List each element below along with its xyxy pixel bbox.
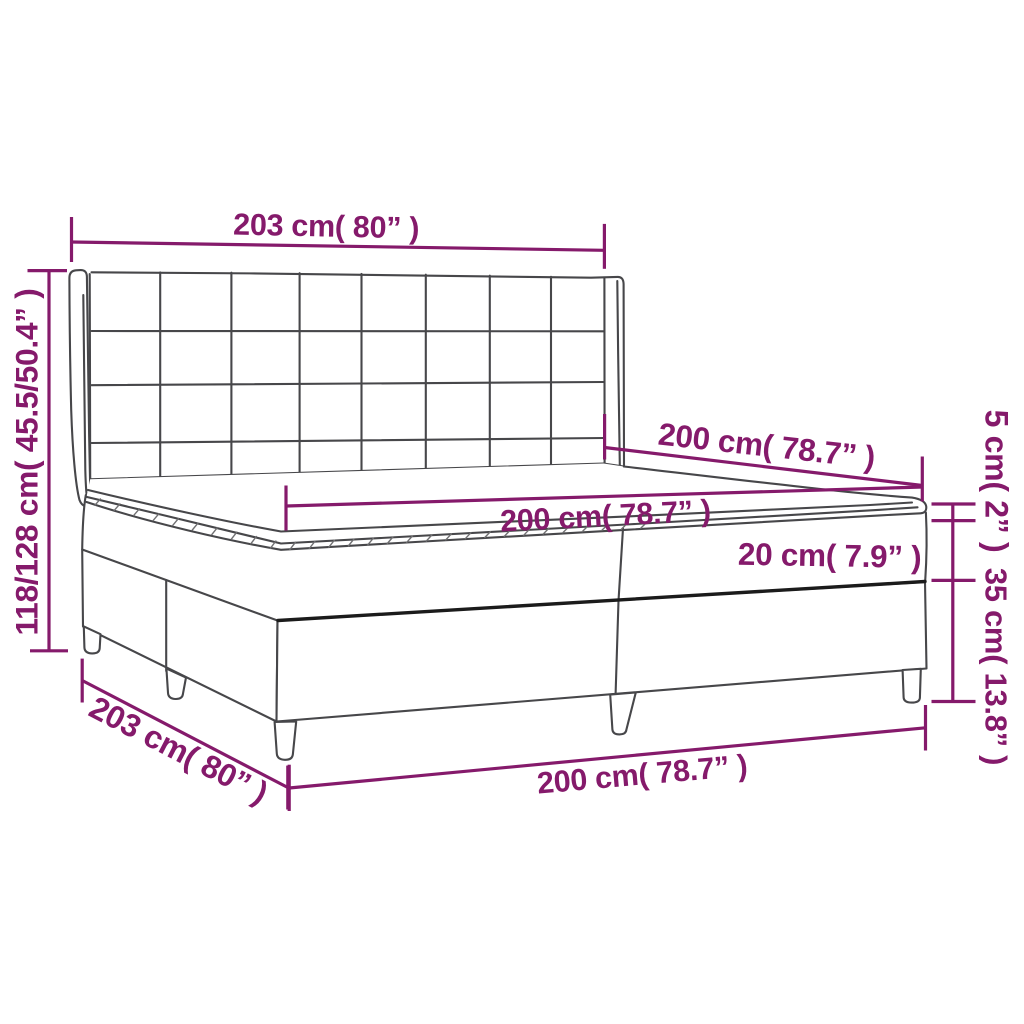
svg-text:20 cm( 7.9” ): 20 cm( 7.9” ) bbox=[738, 536, 922, 575]
svg-text:35 cm( 13.8” ): 35 cm( 13.8” ) bbox=[979, 568, 1014, 765]
svg-text:203 cm( 80” ): 203 cm( 80” ) bbox=[233, 208, 420, 246]
svg-text:118/128 cm( 45.5/50.4” ): 118/128 cm( 45.5/50.4” ) bbox=[9, 289, 45, 636]
svg-text:5 cm( 2” ): 5 cm( 2” ) bbox=[979, 410, 1015, 553]
